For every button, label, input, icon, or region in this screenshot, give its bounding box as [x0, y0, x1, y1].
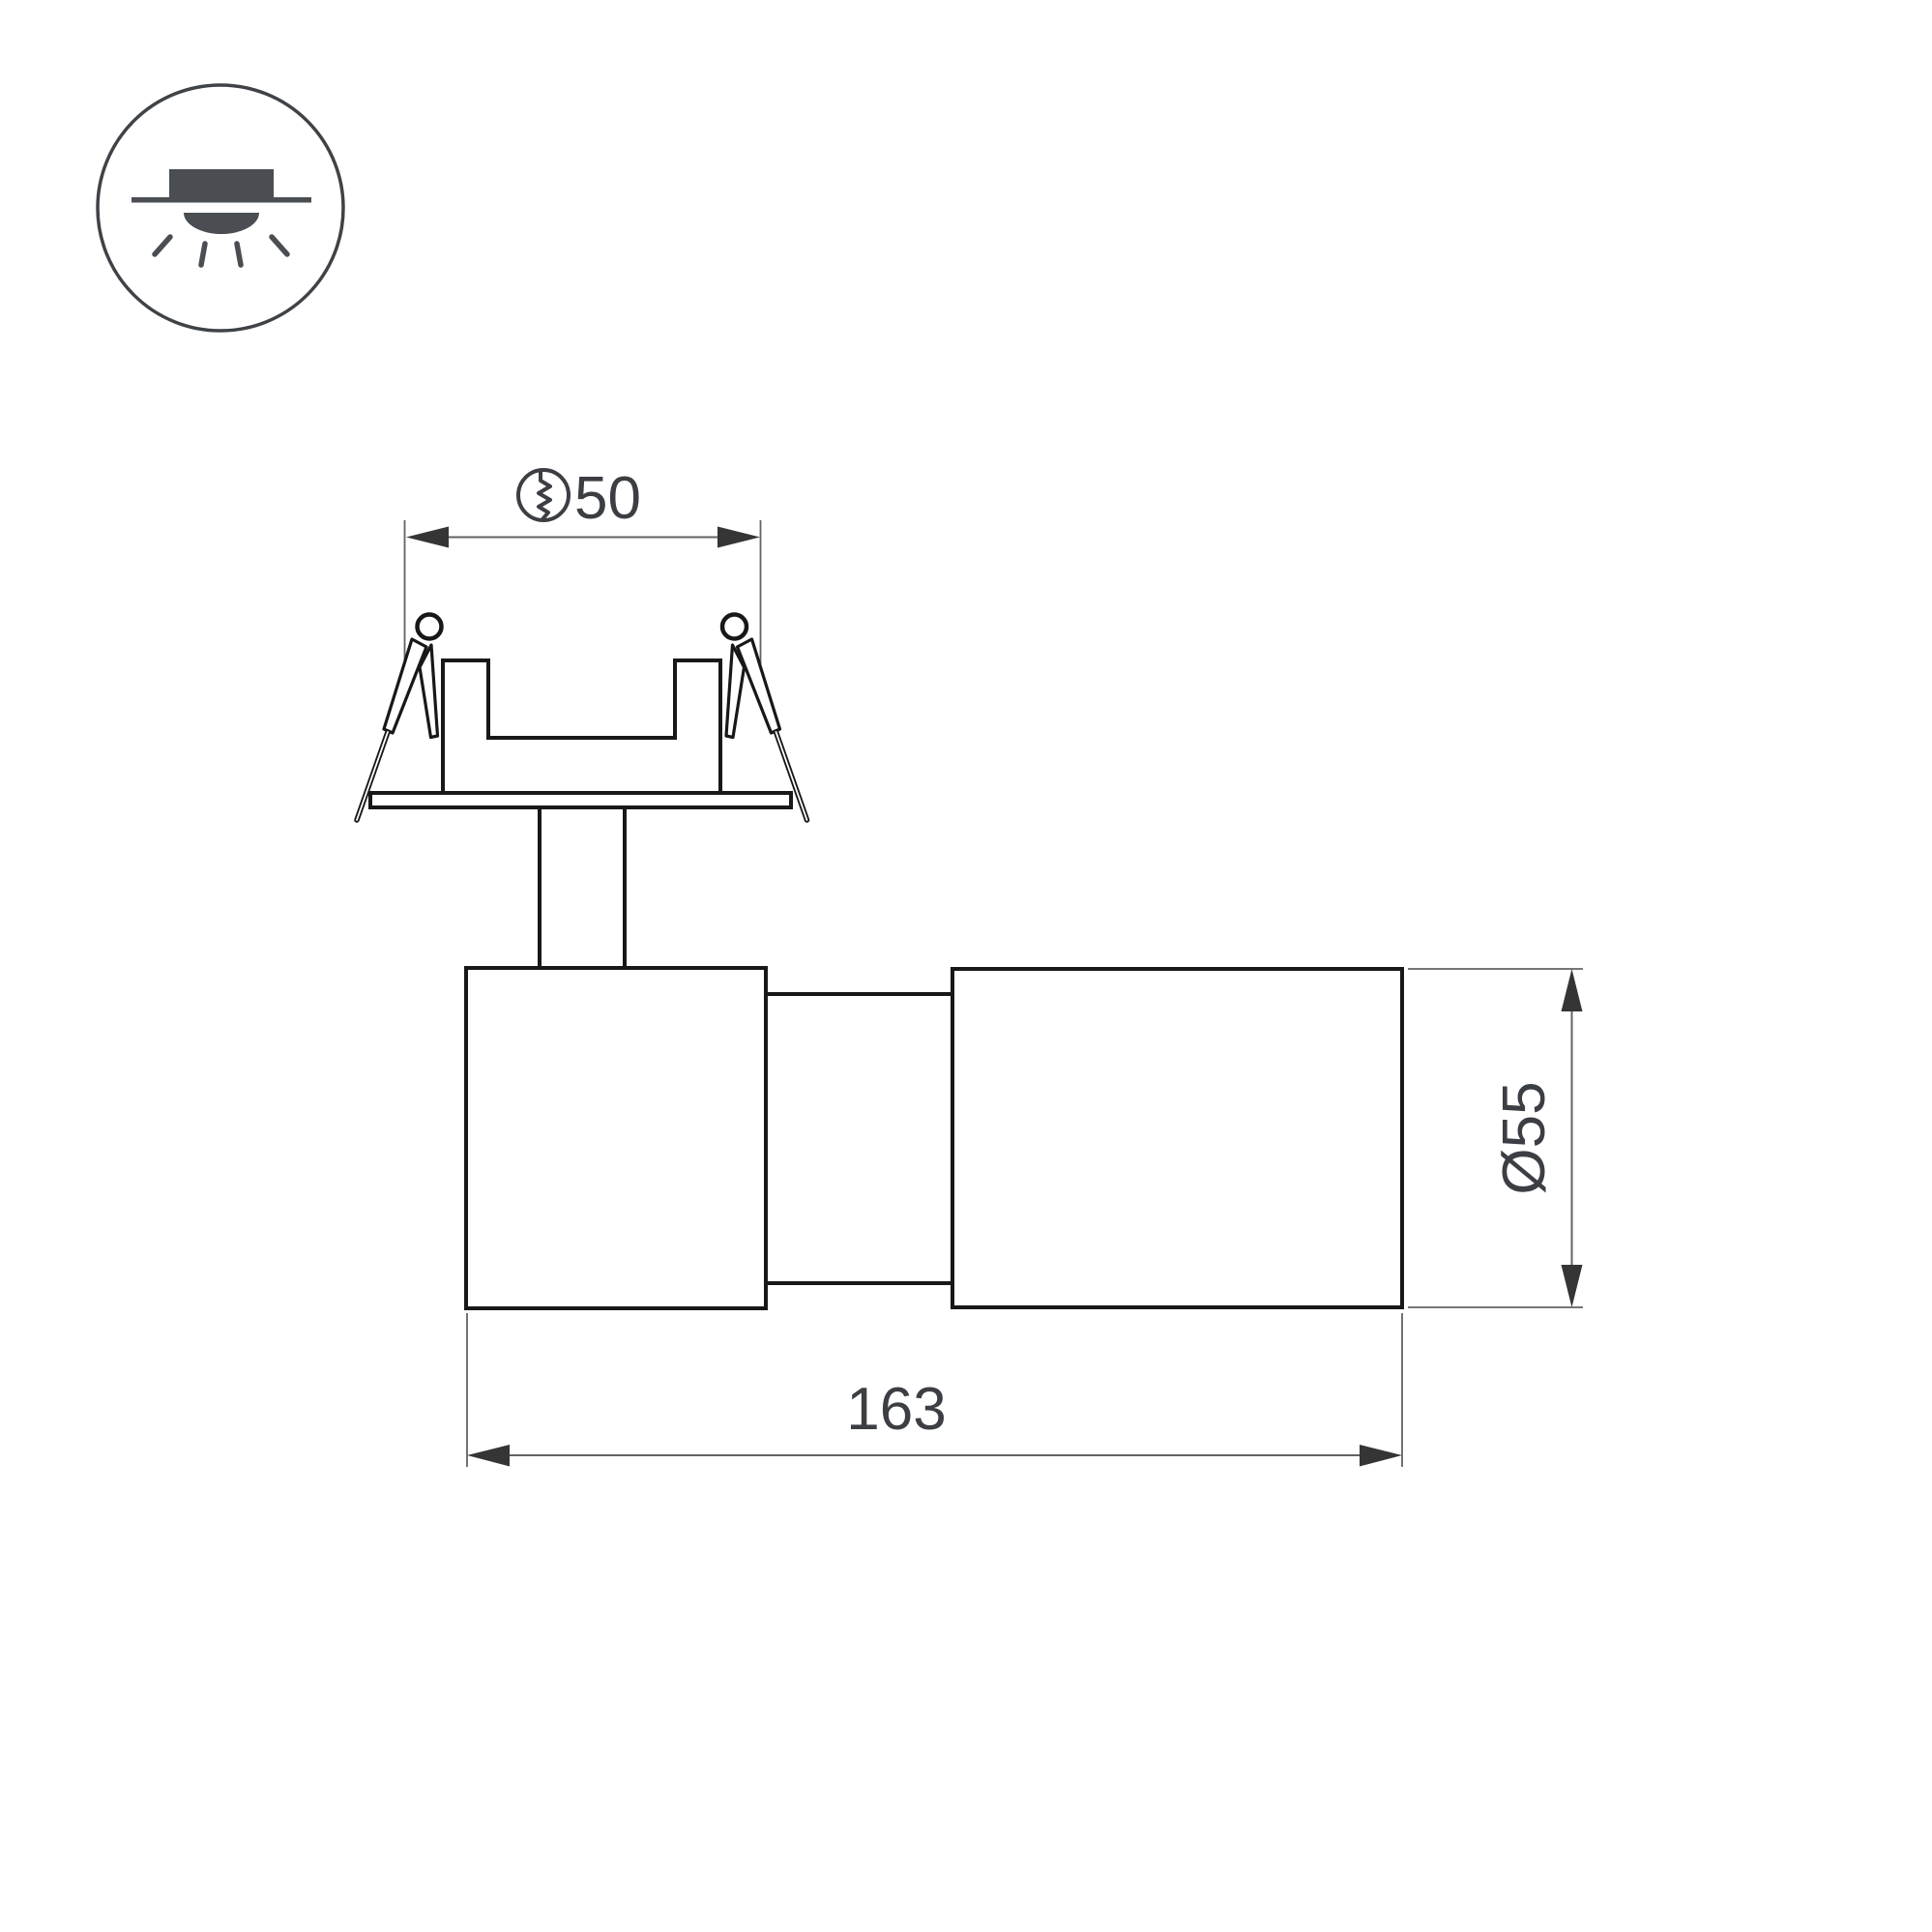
body-middle-joint — [766, 994, 952, 1283]
arrow-right — [717, 527, 760, 548]
dimension-drawing-page: 50 — [0, 0, 1932, 1932]
fixture-body — [466, 968, 1402, 1308]
technical-drawing: 50 — [0, 0, 1932, 1932]
cutout-dimension: 50 — [405, 465, 761, 683]
cutout-value: 50 — [574, 465, 641, 532]
spring-clip-left — [357, 615, 442, 821]
clip-pivot-ring — [722, 615, 746, 639]
icon-housing-block — [169, 169, 274, 201]
icon-circle-border — [98, 85, 343, 331]
arrow-down — [1562, 1265, 1583, 1307]
arrow-right — [1360, 1445, 1402, 1467]
length-dimension: 163 — [467, 1313, 1402, 1467]
trim-flange — [370, 793, 791, 807]
spring-clip-right — [722, 615, 807, 821]
clip-arm-inner — [420, 645, 438, 738]
diameter-dimension: Ø55 — [1408, 969, 1583, 1307]
recessed-downlight-icon — [98, 85, 343, 331]
icon-light-ray — [237, 244, 241, 265]
diameter-value: Ø55 — [1491, 1081, 1558, 1194]
mounting-bracket — [357, 615, 807, 971]
clip-arm-inner — [726, 645, 745, 738]
recessed-housing — [443, 660, 720, 793]
body-rear-section — [466, 968, 766, 1308]
icon-light-ray — [201, 244, 205, 265]
icon-lamp-dome — [184, 213, 259, 234]
body-front-section — [952, 969, 1402, 1307]
arrow-up — [1562, 969, 1583, 1011]
clip-arm-outer — [738, 639, 780, 733]
icon-ceiling-line — [132, 197, 311, 203]
arrow-left — [406, 527, 449, 548]
cutout-hole-icon — [518, 470, 569, 520]
clip-pivot-ring — [418, 615, 442, 639]
icon-light-ray — [155, 237, 170, 254]
length-value: 163 — [846, 1376, 946, 1443]
cutout-symbol-jag — [539, 472, 550, 519]
arrow-left — [467, 1445, 510, 1467]
icon-light-ray — [272, 237, 287, 254]
